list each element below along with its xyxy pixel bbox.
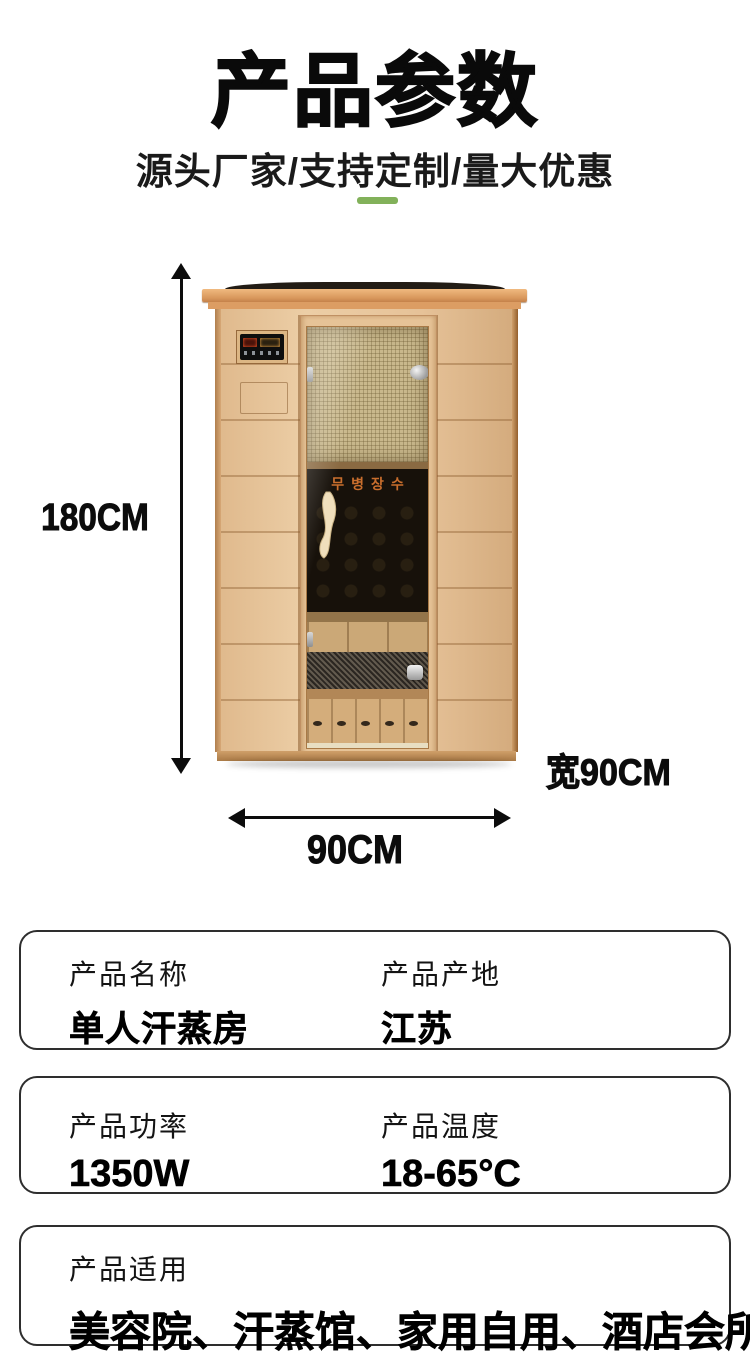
height-dimension-label: 180CM [20, 497, 170, 540]
spec-col: 产品功率 1350W [69, 1105, 381, 1196]
control-panel [240, 334, 284, 360]
sauna-cornice-lower [208, 302, 521, 309]
speaker-panel [240, 382, 288, 414]
accent-dash [357, 197, 398, 204]
spec-value: 美容院、汗蒸馆、家用自用、酒店会所... [69, 1298, 705, 1358]
spec-card-name-origin: 产品名称 单人汗蒸房 产品产地 江苏 [19, 930, 731, 1050]
spec-value: 18-65°C [381, 1153, 693, 1196]
side-width-label: 宽90CM [546, 742, 671, 796]
control-buttons [244, 351, 280, 355]
sauna-cornice [202, 289, 527, 302]
wood-panel-right [437, 309, 512, 752]
height-arrowhead-top [171, 263, 191, 279]
page-title: 产品参数 [0, 50, 750, 134]
spec-col: 产品温度 18-65°C [381, 1105, 693, 1196]
spec-label: 产品产地 [381, 953, 693, 993]
height-arrowhead-bottom [171, 758, 191, 774]
wood-panel-left [221, 309, 300, 752]
spec-value: 1350W [69, 1153, 381, 1196]
spec-label: 产品适用 [69, 1248, 705, 1288]
width-arrowhead-left [228, 808, 245, 828]
width-arrowhead-right [494, 808, 511, 828]
spec-col: 产品产地 江苏 [381, 953, 693, 1052]
floor-shadow [226, 760, 512, 768]
spec-col: 产品名称 单人汗蒸房 [69, 953, 381, 1052]
page-subtitle: 源头厂家/支持定制/量大优惠 [0, 141, 750, 195]
spec-col: 产品适用 美容院、汗蒸馆、家用自用、酒店会所... [69, 1248, 705, 1358]
spec-card-applications: 产品适用 美容院、汗蒸馆、家用自用、酒店会所... [19, 1225, 731, 1346]
spec-label: 产品温度 [381, 1105, 693, 1145]
width-arrow [243, 816, 495, 819]
temperature-display [243, 338, 257, 347]
width-dimension-label: 90CM [265, 828, 445, 873]
product-parameters-page: 产品参数 源头厂家/支持定制/量大优惠 무병장수 [0, 0, 750, 1360]
spec-value: 江苏 [381, 1001, 693, 1052]
cabinet-right-edge [512, 309, 518, 752]
sauna-door-glass: 무병장수 [307, 327, 428, 748]
timer-display [260, 338, 280, 347]
spec-value: 单人汗蒸房 [69, 1001, 381, 1052]
spec-card-power-temperature: 产品功率 1350W 产品温度 18-65°C [19, 1076, 731, 1194]
height-arrow [180, 277, 183, 760]
glass-reflection [307, 327, 428, 748]
spec-label: 产品功率 [69, 1105, 381, 1145]
spec-label: 产品名称 [69, 953, 381, 993]
